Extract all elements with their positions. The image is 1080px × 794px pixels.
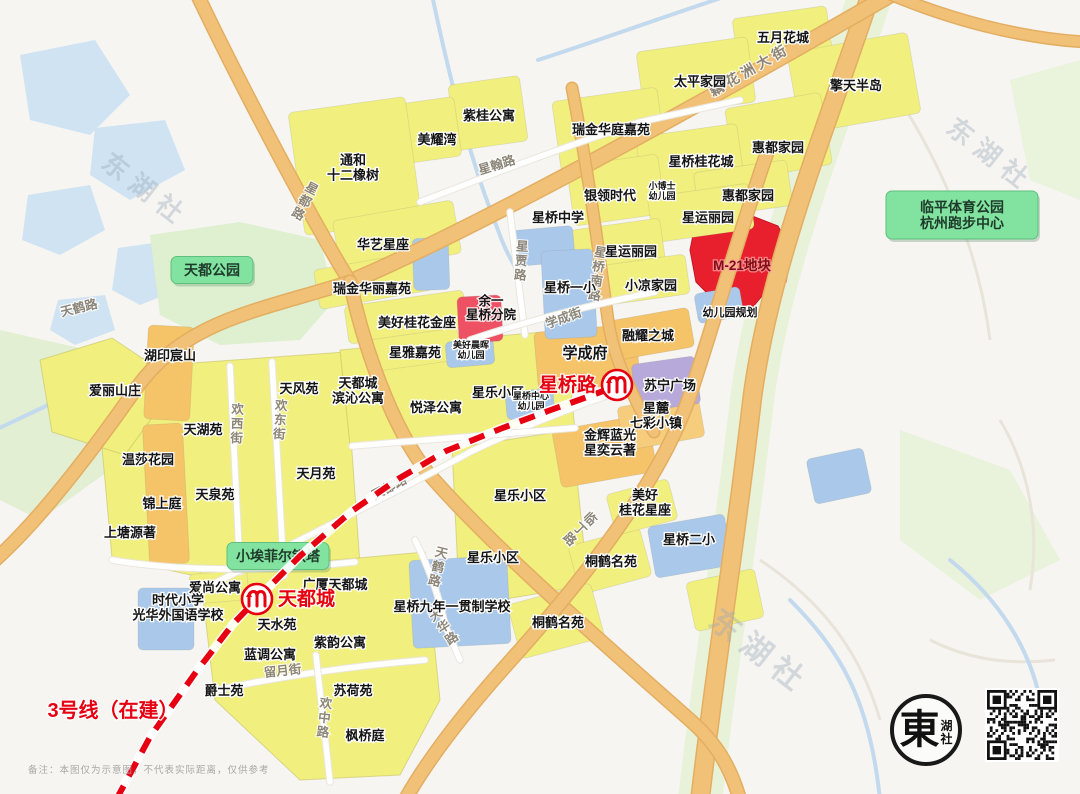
area-label: 天湖苑 <box>183 422 222 437</box>
qr-module <box>1012 726 1015 729</box>
map-canvas: 藕花洲大街星翰路星都路天鹤路星贾路星桥南路学成街天都路欢西街欢东街临丁路天华路留… <box>0 0 1080 794</box>
qr-module <box>993 718 996 721</box>
qr-module <box>993 696 1001 704</box>
qr-module <box>1021 721 1024 724</box>
qr-module <box>1001 732 1004 735</box>
qr-module <box>1032 704 1035 707</box>
qr-module <box>1049 724 1052 727</box>
area-label: 幼儿园规划 <box>703 305 758 319</box>
area-label: 瑞金华庭嘉苑 <box>572 122 650 137</box>
qr-module <box>1001 718 1004 721</box>
qr-module <box>1046 726 1049 729</box>
qr-module <box>1015 690 1018 693</box>
qr-module <box>1037 718 1040 721</box>
area-label: 爱丽山庄 <box>89 383 141 398</box>
qr-module <box>1040 752 1043 755</box>
qr-module <box>1001 726 1004 729</box>
qr-code <box>985 688 1059 762</box>
qr-module <box>1023 726 1026 729</box>
area-label: 悦泽公寓 <box>410 400 462 415</box>
qr-module <box>1015 749 1018 752</box>
qr-module <box>1007 735 1010 738</box>
qr-module <box>990 729 993 732</box>
area-label: 天水苑 <box>257 617 296 632</box>
qr-module <box>1049 740 1052 743</box>
qr-module <box>1046 743 1049 746</box>
area-label: 苏荷苑 <box>333 683 372 698</box>
qr-module <box>1035 726 1038 729</box>
qr-module <box>1015 712 1018 715</box>
qr-module <box>1035 704 1038 707</box>
area-label: 上塘源著 <box>104 525 156 540</box>
qr-module <box>1032 752 1035 755</box>
qr-module <box>1023 715 1026 718</box>
qr-module <box>1029 721 1032 724</box>
area-label: 太平家园 <box>673 74 726 89</box>
qr-module <box>1049 732 1052 735</box>
area-label: 星桥一小 <box>544 280 596 295</box>
qr-module <box>1035 757 1038 760</box>
qr-module <box>1023 712 1026 715</box>
qr-module <box>1015 698 1018 701</box>
qr-module <box>1004 715 1007 718</box>
qr-module <box>1007 752 1010 755</box>
qr-module <box>1051 757 1054 760</box>
area-label: 星桥中学 <box>532 210 584 225</box>
qr-module <box>1015 743 1018 746</box>
qr-module <box>1018 724 1021 727</box>
qr-module <box>1009 738 1012 741</box>
qr-module <box>1021 693 1024 696</box>
qr-module <box>1012 721 1015 724</box>
qr-module <box>1029 749 1032 752</box>
qr-module <box>1032 715 1035 718</box>
qr-module <box>1004 726 1007 729</box>
qr-module <box>1004 729 1007 732</box>
area-label: 天都城滨沁公寓 <box>332 376 384 406</box>
area-label: 温莎花园 <box>122 452 174 467</box>
qr-module <box>1037 740 1040 743</box>
qr-module <box>1023 724 1026 727</box>
qr-module <box>995 715 998 718</box>
area-label: 天风苑 <box>279 381 318 396</box>
qr-module <box>1009 729 1012 732</box>
qr-module <box>1009 754 1012 757</box>
green-poi-pill: 临平体育公园杭州跑步中心 <box>886 191 1040 242</box>
qr-module <box>1018 729 1021 732</box>
qr-module <box>1026 752 1029 755</box>
area-label: 星运丽园 <box>605 244 657 259</box>
qr-module <box>987 718 990 721</box>
qr-module <box>1054 726 1057 729</box>
qr-module <box>1004 721 1007 724</box>
qr-module <box>1004 718 1007 721</box>
qr-module <box>1026 738 1029 741</box>
qr-module <box>1032 726 1035 729</box>
qr-module <box>1009 696 1012 699</box>
qr-module <box>1043 696 1051 704</box>
area-label: 五月花城 <box>757 30 809 45</box>
qr-module <box>1007 749 1010 752</box>
qr-module <box>1009 712 1012 715</box>
poi-label: 天都公园 <box>184 262 240 278</box>
qr-module <box>1012 704 1015 707</box>
qr-module <box>995 729 998 732</box>
qr-module <box>1026 724 1029 727</box>
qr-module <box>1015 721 1018 724</box>
qr-module <box>993 710 996 713</box>
qr-module <box>1046 712 1049 715</box>
area-label: 桐鹤名苑 <box>585 554 637 569</box>
qr-module <box>1007 693 1010 696</box>
qr-module <box>1054 735 1057 738</box>
area-label: 小博士幼儿园 <box>647 180 675 201</box>
qr-module <box>1009 690 1012 693</box>
qr-module <box>1032 693 1035 696</box>
qr-module <box>1054 732 1057 735</box>
road-label: 欢西街 <box>229 401 245 445</box>
area-label: 华艺星座 <box>357 237 409 252</box>
qr-module <box>987 732 990 735</box>
qr-module <box>1032 698 1035 701</box>
qr-module <box>1035 710 1038 713</box>
qr-module <box>1051 752 1054 755</box>
qr-module <box>990 726 993 729</box>
qr-module <box>1015 757 1018 760</box>
qr-module <box>1040 738 1043 741</box>
qr-module <box>990 735 993 738</box>
qr-module <box>1043 738 1046 741</box>
qr-module <box>1035 721 1038 724</box>
qr-module <box>1040 721 1043 724</box>
area-label: 星桥九年一贯制学校 <box>393 599 511 614</box>
area-label: 蓝调公寓 <box>244 647 296 662</box>
area-label: 苏宁广场 <box>644 378 696 393</box>
area-label: 锦上庭 <box>142 496 182 511</box>
qr-module <box>1018 707 1021 710</box>
qr-module <box>995 738 998 741</box>
qr-module <box>1046 754 1049 757</box>
area-label: 融耀之城 <box>622 328 674 343</box>
qr-module <box>1054 710 1057 713</box>
qr-module <box>998 712 1001 715</box>
qr-module <box>1037 743 1040 746</box>
area-label: 擎天半岛 <box>830 78 882 93</box>
qr-module <box>1009 743 1012 746</box>
qr-module <box>1018 698 1021 701</box>
area-label: 枫桥庭 <box>345 728 385 743</box>
qr-module <box>1032 729 1035 732</box>
qr-module <box>1004 712 1007 715</box>
qr-module <box>1001 724 1004 727</box>
qr-module <box>1054 740 1057 743</box>
qr-module <box>1007 738 1010 741</box>
area-label: 金辉蓝光星奕云著 <box>583 428 636 458</box>
qr-module <box>1021 724 1024 727</box>
qr-module <box>1051 712 1054 715</box>
qr-module <box>1009 721 1012 724</box>
green-poi-pill: 天都公园 <box>171 257 255 287</box>
area-label: 学成府 <box>562 344 607 362</box>
qr-module <box>1049 710 1052 713</box>
qr-module <box>1049 746 1052 749</box>
qr-module <box>1051 724 1054 727</box>
qr-module <box>1012 743 1015 746</box>
special-label: M-21地块 <box>713 257 771 273</box>
qr-module <box>990 712 993 715</box>
qr-module <box>1054 718 1057 721</box>
qr-module <box>1004 724 1007 727</box>
area-label: 天泉苑 <box>195 487 234 502</box>
qr-module <box>1043 732 1046 735</box>
area-label: 惠都家园 <box>752 140 804 155</box>
qr-module <box>1051 729 1054 732</box>
area-label: 湖印宸山 <box>144 348 196 363</box>
area-label: 银领时代 <box>584 188 636 203</box>
district-block <box>142 423 189 565</box>
qr-module <box>1009 726 1012 729</box>
qr-module <box>1018 746 1021 749</box>
qr-module <box>1037 715 1040 718</box>
qr-module <box>993 746 1001 754</box>
metro-line3-label: 3号线（在建） <box>47 698 178 722</box>
logo-sub-chars: 湖 社 <box>940 720 952 745</box>
qr-module <box>1037 732 1040 735</box>
area-label: 天月苑 <box>296 466 335 481</box>
qr-module <box>1040 746 1043 749</box>
qr-module <box>1029 754 1032 757</box>
qr-module <box>1012 754 1015 757</box>
qr-module <box>1026 698 1029 701</box>
qr-module <box>1029 690 1032 693</box>
qr-module <box>1021 752 1024 755</box>
area-label: 小凉家园 <box>625 278 677 293</box>
qr-module <box>1037 754 1040 757</box>
map-svg: 藕花洲大街星翰路星都路天鹤路星贾路星桥南路学成街天都路欢西街欢东街临丁路天华路留… <box>0 0 1080 794</box>
metro-station[interactable]: 星桥路 <box>539 370 632 400</box>
qr-module <box>1035 712 1038 715</box>
map-disclaimer: 备注：本图仅为示意图，不代表实际距离，仅供参考 <box>28 762 270 776</box>
qr-module <box>1023 721 1026 724</box>
qr-module <box>1026 696 1029 699</box>
qr-module <box>1018 732 1021 735</box>
area-label: 星乐小区 <box>494 488 546 503</box>
qr-module <box>1040 712 1043 715</box>
qr-module <box>1021 710 1024 713</box>
qr-module <box>1051 746 1054 749</box>
qr-module <box>1035 718 1038 721</box>
qr-module <box>1043 743 1046 746</box>
qr-module <box>1032 738 1035 741</box>
qr-module <box>1026 712 1029 715</box>
area-label: 星乐小区 <box>467 550 519 565</box>
qr-module <box>993 732 996 735</box>
area-label: 星桥桂花城 <box>668 154 733 169</box>
qr-module <box>1007 707 1010 710</box>
area-label: 美耀湾 <box>417 132 456 147</box>
qr-module <box>990 718 993 721</box>
qr-module <box>1021 715 1024 718</box>
area-label: 美好晨晖幼儿园 <box>453 339 489 360</box>
qr-module <box>1037 757 1040 760</box>
qr-module <box>1026 710 1029 713</box>
qr-module <box>1029 732 1032 735</box>
qr-module <box>1046 740 1049 743</box>
qr-module <box>1021 746 1024 749</box>
qr-module <box>1026 740 1029 743</box>
qr-module <box>1035 749 1038 752</box>
area-label: 瑞金华丽嘉苑 <box>333 281 411 296</box>
area-label: 桐鹤名苑 <box>532 615 584 630</box>
qr-module <box>1007 696 1010 699</box>
qr-module <box>1040 710 1043 713</box>
qr-module <box>1054 724 1057 727</box>
logo-main-char: 東 <box>899 710 939 750</box>
qr-module <box>998 710 1001 713</box>
qr-module <box>1012 715 1015 718</box>
donghushe-logo: 東 湖 社 <box>890 694 962 766</box>
qr-module <box>1018 721 1021 724</box>
qr-module <box>1012 738 1015 741</box>
qr-module <box>1018 696 1021 699</box>
metro-station-label: 星桥路 <box>539 373 597 396</box>
qr-module <box>1043 746 1046 749</box>
qr-module <box>1007 721 1010 724</box>
poi-label: 临平体育公园杭州跑步中心 <box>920 199 1004 231</box>
qr-module <box>1037 729 1040 732</box>
qr-module <box>1049 757 1052 760</box>
qr-module <box>998 721 1001 724</box>
qr-module <box>1021 754 1024 757</box>
qr-module <box>1043 740 1046 743</box>
qr-module <box>993 721 996 724</box>
qr-module <box>1051 740 1054 743</box>
qr-module <box>1015 715 1018 718</box>
qr-module <box>1026 754 1029 757</box>
qr-module <box>1023 718 1026 721</box>
qr-module <box>1040 715 1043 718</box>
qr-module <box>1012 710 1015 713</box>
qr-module <box>1040 743 1043 746</box>
qr-module <box>1032 740 1035 743</box>
qr-module <box>1015 707 1018 710</box>
qr-module <box>1051 735 1054 738</box>
area-label: 美好桂花金座 <box>378 315 456 330</box>
qr-module <box>1029 698 1032 701</box>
qr-module <box>1046 729 1049 732</box>
qr-module <box>1015 752 1018 755</box>
area-label: 星雅嘉苑 <box>389 345 441 360</box>
metro-station[interactable]: 天都城 <box>242 584 335 614</box>
qr-module <box>1035 735 1038 738</box>
qr-module <box>1018 754 1021 757</box>
qr-module <box>998 724 1001 727</box>
metro-station-label: 天都城 <box>278 587 335 610</box>
qr-module <box>1009 704 1012 707</box>
area-label: 紫韵公寓 <box>314 635 366 650</box>
area-label: 星桥二小 <box>663 532 715 547</box>
qr-module <box>1018 757 1021 760</box>
qr-module <box>1029 746 1032 749</box>
qr-module <box>1029 704 1032 707</box>
area-label: 惠都家园 <box>722 188 774 203</box>
qr-module <box>1007 724 1010 727</box>
qr-module <box>987 735 990 738</box>
qr-module <box>1049 715 1052 718</box>
qr-module <box>1023 729 1026 732</box>
qr-module <box>1023 690 1026 693</box>
area-label: 星运丽园 <box>682 210 734 225</box>
qr-module <box>987 721 990 724</box>
qr-module <box>1012 693 1015 696</box>
area-label: 爵士苑 <box>204 683 243 698</box>
qr-module <box>1046 715 1049 718</box>
qr-module <box>1043 749 1046 752</box>
qr-module <box>1029 715 1032 718</box>
qr-module <box>1015 704 1018 707</box>
qr-module <box>1029 738 1032 741</box>
area-label: 紫桂公寓 <box>463 108 515 123</box>
qr-module <box>1043 735 1046 738</box>
qr-module <box>1026 726 1029 729</box>
qr-module <box>998 738 1001 741</box>
qr-module <box>1046 757 1049 760</box>
qr-module <box>998 735 1001 738</box>
qr-module <box>1007 710 1010 713</box>
qr-module <box>1021 749 1024 752</box>
qr-module <box>1012 732 1015 735</box>
qr-module <box>1049 749 1052 752</box>
qr-module <box>1021 718 1024 721</box>
